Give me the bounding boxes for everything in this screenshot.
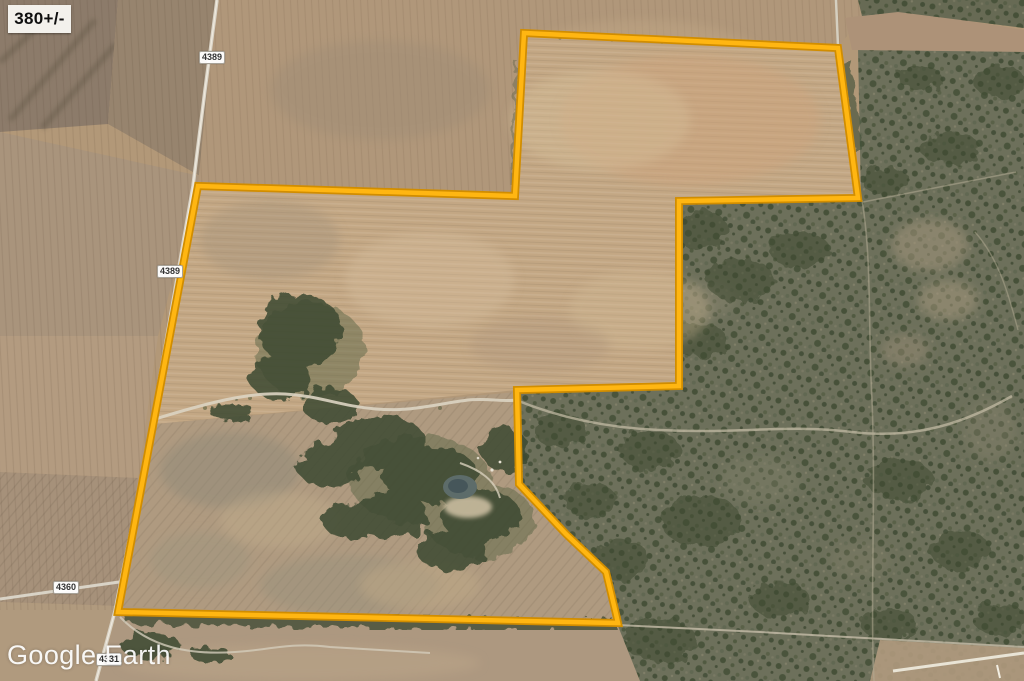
- acreage-badge: 380+/-: [8, 5, 71, 33]
- satellite-imagery: [0, 0, 1024, 681]
- road-label-4389-mid: 4389: [157, 265, 183, 278]
- google-earth-watermark: Google Earth: [7, 640, 171, 671]
- satellite-map-canvas[interactable]: 380+/- 4389 4389 4360 4331 Google Earth: [0, 0, 1024, 681]
- road-label-4360: 4360: [53, 581, 79, 594]
- road-label-4389-north: 4389: [199, 51, 225, 64]
